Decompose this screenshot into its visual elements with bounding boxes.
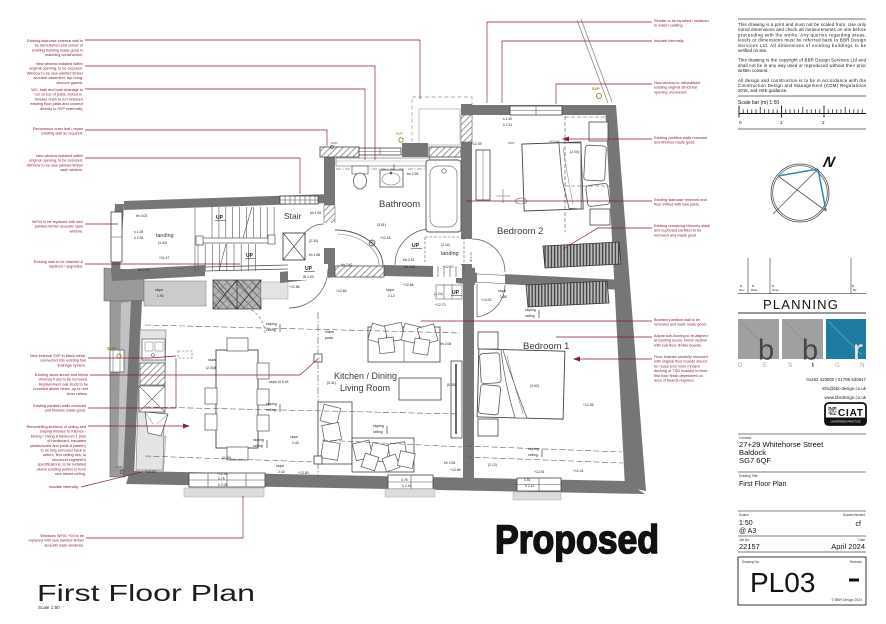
svg-text:slope: slope (498, 289, 506, 293)
svg-text:h 2.34: h 2.34 (134, 236, 144, 240)
svg-text:window.: window. (69, 229, 83, 233)
svg-text:of hardboard, insulated: of hardboard, insulated (47, 439, 86, 443)
svg-text:verified on site.: verified on site. (738, 48, 767, 53)
svg-text:existing floor joists and conn: existing floor joists and connect (30, 102, 84, 106)
svg-text:acoustic casement, top-hung,: acoustic casement, top-hung, (33, 76, 83, 80)
svg-text:+11.47: +11.47 (159, 256, 169, 260)
svg-text:repaired / upgraded.: repaired / upgraded. (49, 265, 83, 269)
svg-text:+12.70: +12.70 (435, 303, 446, 307)
svg-text:info@bbr-design.co.uk: info@bbr-design.co.uk (822, 386, 867, 391)
svg-text:sloping: sloping (266, 402, 277, 406)
svg-text:Scales: Scales (739, 513, 749, 517)
svg-text:slope: slope (386, 288, 394, 292)
svg-text:UP: UP (216, 215, 224, 221)
svg-text:drainage system.: drainage system. (57, 363, 86, 367)
svg-text:RWP: RWP (331, 141, 338, 145)
svg-text:ceiling: ceiling (266, 408, 276, 412)
svg-text:Bathroom: Bathroom (379, 199, 420, 210)
svg-text:for reuse (not more modern: for reuse (not more modern (654, 364, 700, 368)
svg-text:sash window.: sash window. (60, 168, 83, 172)
svg-text:+13.50: +13.50 (298, 471, 309, 475)
svg-text:New window installed within: New window installed within (36, 154, 83, 158)
svg-text:sloping: sloping (266, 322, 277, 326)
svg-text:Dining / Living & Bedroom 1 (r: Dining / Living & Bedroom 1 (risk (31, 434, 86, 438)
svg-text:removed and walls made good.: removed and walls made good. (654, 323, 707, 327)
svg-text:slope: slope (276, 464, 284, 468)
svg-text:ceiling: ceiling (266, 328, 276, 332)
svg-text:Proposed: Proposed (495, 518, 659, 562)
svg-text:2.12: 2.12 (388, 294, 395, 298)
svg-text:Existing staircase external wa: Existing staircase external wall to (27, 39, 83, 43)
svg-text:Existing partition walls remov: Existing partition walls removed (654, 136, 707, 140)
svg-text:Drawing Title:: Drawing Title: (739, 474, 758, 478)
svg-text:painted timber acoustic sash: painted timber acoustic sash (35, 225, 83, 229)
svg-text:SG7 6QF: SG7 6QF (739, 456, 771, 465)
svg-text:and finishes made good.: and finishes made good. (654, 141, 695, 145)
svg-text:acoustic sash windows.: acoustic sash windows. (44, 543, 84, 547)
svg-text:G: G (835, 362, 840, 369)
svg-text:cf: cf (856, 521, 862, 528)
svg-text:I: I (812, 362, 814, 369)
svg-text:first floor finish dependent o: first floor finish dependent on (654, 374, 703, 378)
svg-text:ceiling: ceiling (528, 453, 538, 457)
svg-text:1.94: 1.94 (157, 294, 164, 298)
svg-text:run on top of joists, boxed in: run on top of joists, boxed in. (34, 93, 83, 97)
svg-text:truss rafters.: truss rafters. (67, 392, 88, 396)
svg-text:sloping: sloping (373, 424, 384, 428)
svg-text:bh 2.06: bh 2.06 (440, 342, 451, 346)
svg-text:to be fully removed back to: to be fully removed back to (41, 449, 86, 453)
svg-text:decking or T&G boards) to form: decking or T&G boards) to form (654, 369, 707, 373)
svg-text:ceiling: ceiling (525, 314, 535, 318)
svg-text:Scale bar (m) 1:50: Scale bar (m) 1:50 (738, 100, 779, 106)
svg-text:PLANNING: PLANNING (763, 297, 839, 312)
svg-text:above existing purlins to form: above existing purlins to form (37, 467, 86, 471)
svg-text:rafters, firm ceiling ties, to: rafters, firm ceiling ties, to (43, 453, 86, 457)
svg-text:posts: posts (325, 336, 333, 340)
svg-text:(2.34): (2.34) (309, 239, 318, 243)
svg-text:specifications, to be installe: specifications, to be installed (38, 463, 86, 467)
svg-text:Drawn/checked: Drawn/checked (843, 513, 865, 517)
svg-text:+12.39: +12.39 (471, 142, 482, 146)
svg-text:removed and made good.: removed and made good. (654, 233, 697, 237)
svg-text:existing original structural: existing original structural (654, 86, 697, 90)
svg-text:Window to be new painted timbe: Window to be new painted timber (27, 163, 84, 167)
svg-text:+12.84: +12.84 (336, 289, 347, 293)
svg-text:WC, bath and bath drainage to: WC, bath and bath drainage to (31, 88, 83, 92)
svg-text:landing: landing (156, 233, 174, 239)
svg-text:Render to be repaired / replac: Render to be repaired / replaced (654, 19, 709, 23)
svg-text:Insulate internally.: Insulate internally. (49, 485, 79, 489)
svg-text:Boarded partition wall to be: Boarded partition wall to be (654, 318, 700, 322)
svg-text:N: N (860, 362, 864, 369)
svg-text:1.88: 1.88 (500, 295, 507, 299)
svg-text:timber: timber (325, 330, 335, 334)
svg-text:and finishes made good.: and finishes made good. (45, 409, 86, 413)
svg-text:+12.96: +12.96 (583, 403, 594, 407)
svg-text:bh 2.06: bh 2.06 (444, 461, 455, 465)
svg-text:www.bbrdesign.co.uk: www.bbrdesign.co.uk (825, 395, 867, 400)
svg-text:b: b (802, 335, 818, 367)
svg-text:(1.2v): (1.2v) (434, 292, 443, 296)
svg-text:Floor finishes carefully remov: Floor finishes carefully removed (654, 355, 708, 359)
svg-text:ceiling: ceiling (373, 430, 383, 434)
svg-text:PL03: PL03 (750, 567, 815, 598)
svg-text:written consent.: written consent. (738, 68, 768, 73)
svg-text:Existing stair to be retained: Existing stair to be retained & (34, 260, 84, 264)
svg-text:Adjust sub-flooring to re-alig: Adjust sub-flooring to re-aligned (654, 334, 708, 338)
svg-text:replaced with new painted timb: replaced with new painted timber (28, 539, 84, 543)
svg-text:Remodelling sections of ceilin: Remodelling sections of ceiling and (26, 425, 86, 429)
svg-text:(3.32): (3.32) (158, 241, 167, 245)
svg-text:bh 2.40: bh 2.40 (341, 263, 352, 267)
svg-text:at existing levels. Finish sec: at existing levels. Finish section (654, 339, 707, 343)
svg-text:Rev: Rev (739, 288, 745, 292)
svg-text:bh 2.33: bh 2.33 (403, 258, 414, 262)
svg-text:22157: 22157 (739, 542, 760, 551)
svg-text:with sub-floor timber boards.: with sub-floor timber boards. (654, 343, 702, 347)
svg-text:be demolished and corner of: be demolished and corner of (35, 44, 84, 48)
svg-text:New window installed within: New window installed within (36, 62, 83, 66)
svg-text:0.51: 0.51 (524, 478, 531, 482)
svg-text:+12.66: +12.66 (450, 468, 461, 472)
svg-text:+12.68: +12.68 (403, 283, 414, 287)
svg-text:Existing remaining chimney sta: Existing remaining chimney stack (654, 224, 710, 228)
svg-text:(3.62): (3.62) (530, 384, 539, 388)
svg-text:+12.70: +12.70 (443, 265, 454, 269)
svg-text:chimney truss to be removed.: chimney truss to be removed. (38, 378, 88, 382)
svg-text:+12.18: +12.18 (380, 236, 391, 240)
svg-text:h 2.11: h 2.11 (503, 123, 512, 127)
svg-text:SVP: SVP (107, 346, 116, 351)
svg-text:SVP: SVP (592, 87, 600, 91)
svg-text:SVP: SVP (396, 132, 404, 136)
svg-text:2.42: 2.42 (278, 470, 285, 474)
svg-text:0: 0 (739, 120, 742, 125)
svg-text:studs: studs (208, 358, 216, 362)
svg-text:New window to rationalised: New window to rationalised (654, 81, 700, 85)
svg-text:+13.40: +13.40 (549, 140, 560, 144)
svg-text:bh 2.48: bh 2.48 (404, 265, 415, 269)
svg-text:New external SVP in black meta: New external SVP in black metal, (30, 354, 86, 358)
svg-text:floor infilled with new joists: floor infilled with new joists. (654, 203, 700, 207)
svg-text:s 1.08: s 1.08 (134, 230, 143, 234)
svg-text:h 2.41: h 2.41 (402, 484, 412, 488)
svg-text:Kitchen / Dining: Kitchen / Dining (334, 371, 397, 381)
svg-text:to match existing.: to match existing. (654, 24, 684, 28)
svg-text:Windows WF01 +03 to be: Windows WF01 +03 to be (40, 534, 84, 538)
svg-text:Desc: Desc (772, 288, 779, 292)
svg-text:W 1.00: W 1.00 (303, 275, 314, 279)
svg-text:bh 2.28: bh 2.28 (407, 172, 418, 176)
svg-text:Bedroom 2: Bedroom 2 (497, 226, 543, 237)
svg-text:provided above beam, up to roo: provided above beam, up to roof (33, 387, 89, 391)
svg-text:UP: UP (246, 253, 254, 259)
svg-text:Existing partition walls remov: Existing partition walls removed (33, 404, 86, 408)
svg-text:1:50: 1:50 (739, 520, 753, 527)
svg-text:sloping: sloping (528, 447, 539, 451)
svg-text:RWP: RWP (508, 141, 515, 145)
svg-text:(2.34)f: (2.34)f (206, 366, 216, 370)
svg-text:Scale 1:50: Scale 1:50 (38, 605, 60, 610)
svg-text:+12.41: +12.41 (573, 469, 584, 473)
svg-text:(2.12): (2.12) (488, 463, 497, 467)
svg-text:Shower drain to run between: Shower drain to run between (34, 97, 83, 101)
svg-text:UP: UP (305, 266, 313, 272)
svg-text:original opening, to be expose: original opening, to be exposed. (29, 159, 83, 163)
svg-text:h 2.28: h 2.28 (218, 483, 228, 487)
svg-text:0.75: 0.75 (218, 477, 225, 481)
svg-text:UP: UP (452, 290, 460, 296)
svg-text:(0.30): (0.30) (447, 383, 456, 387)
svg-text:obscure glazed.: obscure glazed. (56, 81, 83, 85)
svg-text:connected into existing foul: connected into existing foul (40, 359, 86, 363)
svg-text:(5.31): (5.31) (327, 381, 336, 385)
svg-text:Insulate internally.: Insulate internally. (654, 39, 684, 43)
svg-text:plasterboard and joints & plas: plasterboard and joints & plaster) (30, 444, 86, 448)
svg-text:bh 2.44: bh 2.44 (138, 268, 149, 272)
svg-text:sloping finishes to Kitchen /: sloping finishes to Kitchen / (40, 430, 87, 434)
svg-text:First Floor Plan: First Floor Plan (37, 580, 255, 606)
svg-text:D: D (738, 362, 743, 369)
svg-text:S: S (788, 362, 792, 369)
svg-text:W 1.74: W 1.74 (469, 252, 473, 262)
svg-text:April 2024: April 2024 (831, 542, 865, 551)
svg-text:First Floor Plan: First Floor Plan (739, 481, 787, 488)
svg-text:sloping: sloping (525, 308, 536, 312)
svg-text:with original floor boards sto: with original floor boards stored (654, 360, 707, 364)
svg-text:(3.51): (3.51) (377, 223, 386, 227)
svg-text:bh 1.92: bh 1.92 (310, 211, 321, 215)
svg-text:Stair: Stair (284, 211, 302, 221)
svg-text:+13.02: +13.02 (145, 470, 156, 474)
svg-text:Drawing No.: Drawing No. (742, 560, 760, 564)
svg-text:Bedroom 1: Bedroom 1 (523, 341, 569, 352)
svg-text:CHARTERED PRACTICE: CHARTERED PRACTICE (831, 420, 861, 424)
svg-text:1: 1 (780, 120, 783, 125)
svg-text:Window to be new painted timbe: Window to be new painted timber (27, 71, 84, 75)
svg-text:Living Room: Living Room (340, 383, 390, 393)
svg-text:slope ht 5.1ft: slope ht 5.1ft (269, 380, 288, 384)
svg-text:Replacement oak studs to be: Replacement oak studs to be (39, 382, 88, 386)
svg-text:(2.1v): (2.1v) (441, 243, 450, 247)
svg-text:2: 2 (822, 120, 825, 125)
svg-text:directly to SVP externally.: directly to SVP externally. (40, 107, 83, 111)
svg-text:RWP: RWP (116, 465, 123, 469)
svg-text:new raised ceiling.: new raised ceiling. (55, 472, 86, 476)
svg-text:opening uncovered.: opening uncovered. (654, 90, 687, 94)
svg-text:@ A3: @ A3 (739, 528, 756, 535)
svg-text:existing building made good in: existing building made good in (32, 48, 83, 52)
svg-text:+12.54: +12.54 (217, 472, 228, 476)
svg-text:+12.86: +12.86 (289, 285, 300, 289)
svg-text:landing: landing (441, 251, 459, 257)
svg-text:structural engineer's: structural engineer's (52, 458, 86, 462)
svg-text:s 1.40: s 1.40 (503, 117, 512, 121)
svg-text:h 2.12: h 2.12 (525, 484, 535, 488)
svg-text:UP: UP (412, 243, 420, 249)
svg-text:bh 3.03: bh 3.03 (136, 214, 147, 218)
svg-text:Date: Date (751, 288, 758, 292)
svg-text:matching construction.: matching construction. (45, 53, 83, 57)
svg-text:sloping: sloping (253, 438, 264, 442)
svg-text:Existing staircase removed and: Existing staircase removed and (654, 198, 707, 202)
svg-text:Revision: Revision (850, 560, 862, 564)
svg-text:CIAT: CIAT (838, 408, 864, 419)
svg-text:ceiling: ceiling (253, 444, 263, 448)
svg-text:0.75: 0.75 (401, 478, 408, 482)
svg-text:(2.38): (2.38) (222, 456, 231, 460)
svg-text:area of boards required.: area of boards required. (654, 379, 695, 383)
svg-text:bh 1.86: bh 1.86 (309, 253, 320, 257)
svg-text:2015, and HSE guidance.: 2015, and HSE guidance. (738, 88, 788, 93)
svg-text:original opening, to be expose: original opening, to be exposed. (29, 67, 83, 71)
svg-text:existing wall as required.: existing wall as required. (41, 132, 83, 136)
svg-text:(2.04): (2.04) (570, 150, 579, 154)
svg-text:Reconstruct outer leaf / repai: Reconstruct outer leaf / repair (33, 127, 84, 131)
svg-text:+13.02: +13.02 (481, 298, 492, 302)
svg-text:slope: slope (155, 288, 163, 292)
svg-text:Existing studs above and below: Existing studs above and below (35, 373, 88, 377)
svg-text:2.43: 2.43 (292, 441, 299, 445)
svg-text:By: By (853, 288, 857, 292)
svg-text:slope: slope (290, 435, 298, 439)
svg-text:01462 420800 | 01799 530847: 01462 420800 | 01799 530847 (806, 377, 866, 382)
svg-text:© BBR Design 2024: © BBR Design 2024 (832, 598, 863, 602)
svg-text:+12.91: +12.91 (534, 470, 545, 474)
svg-text:and cupboard partition to be: and cupboard partition to be (654, 229, 701, 233)
svg-text:E: E (763, 362, 767, 369)
svg-text:WF04 to be replaced with new: WF04 to be replaced with new (32, 220, 83, 224)
